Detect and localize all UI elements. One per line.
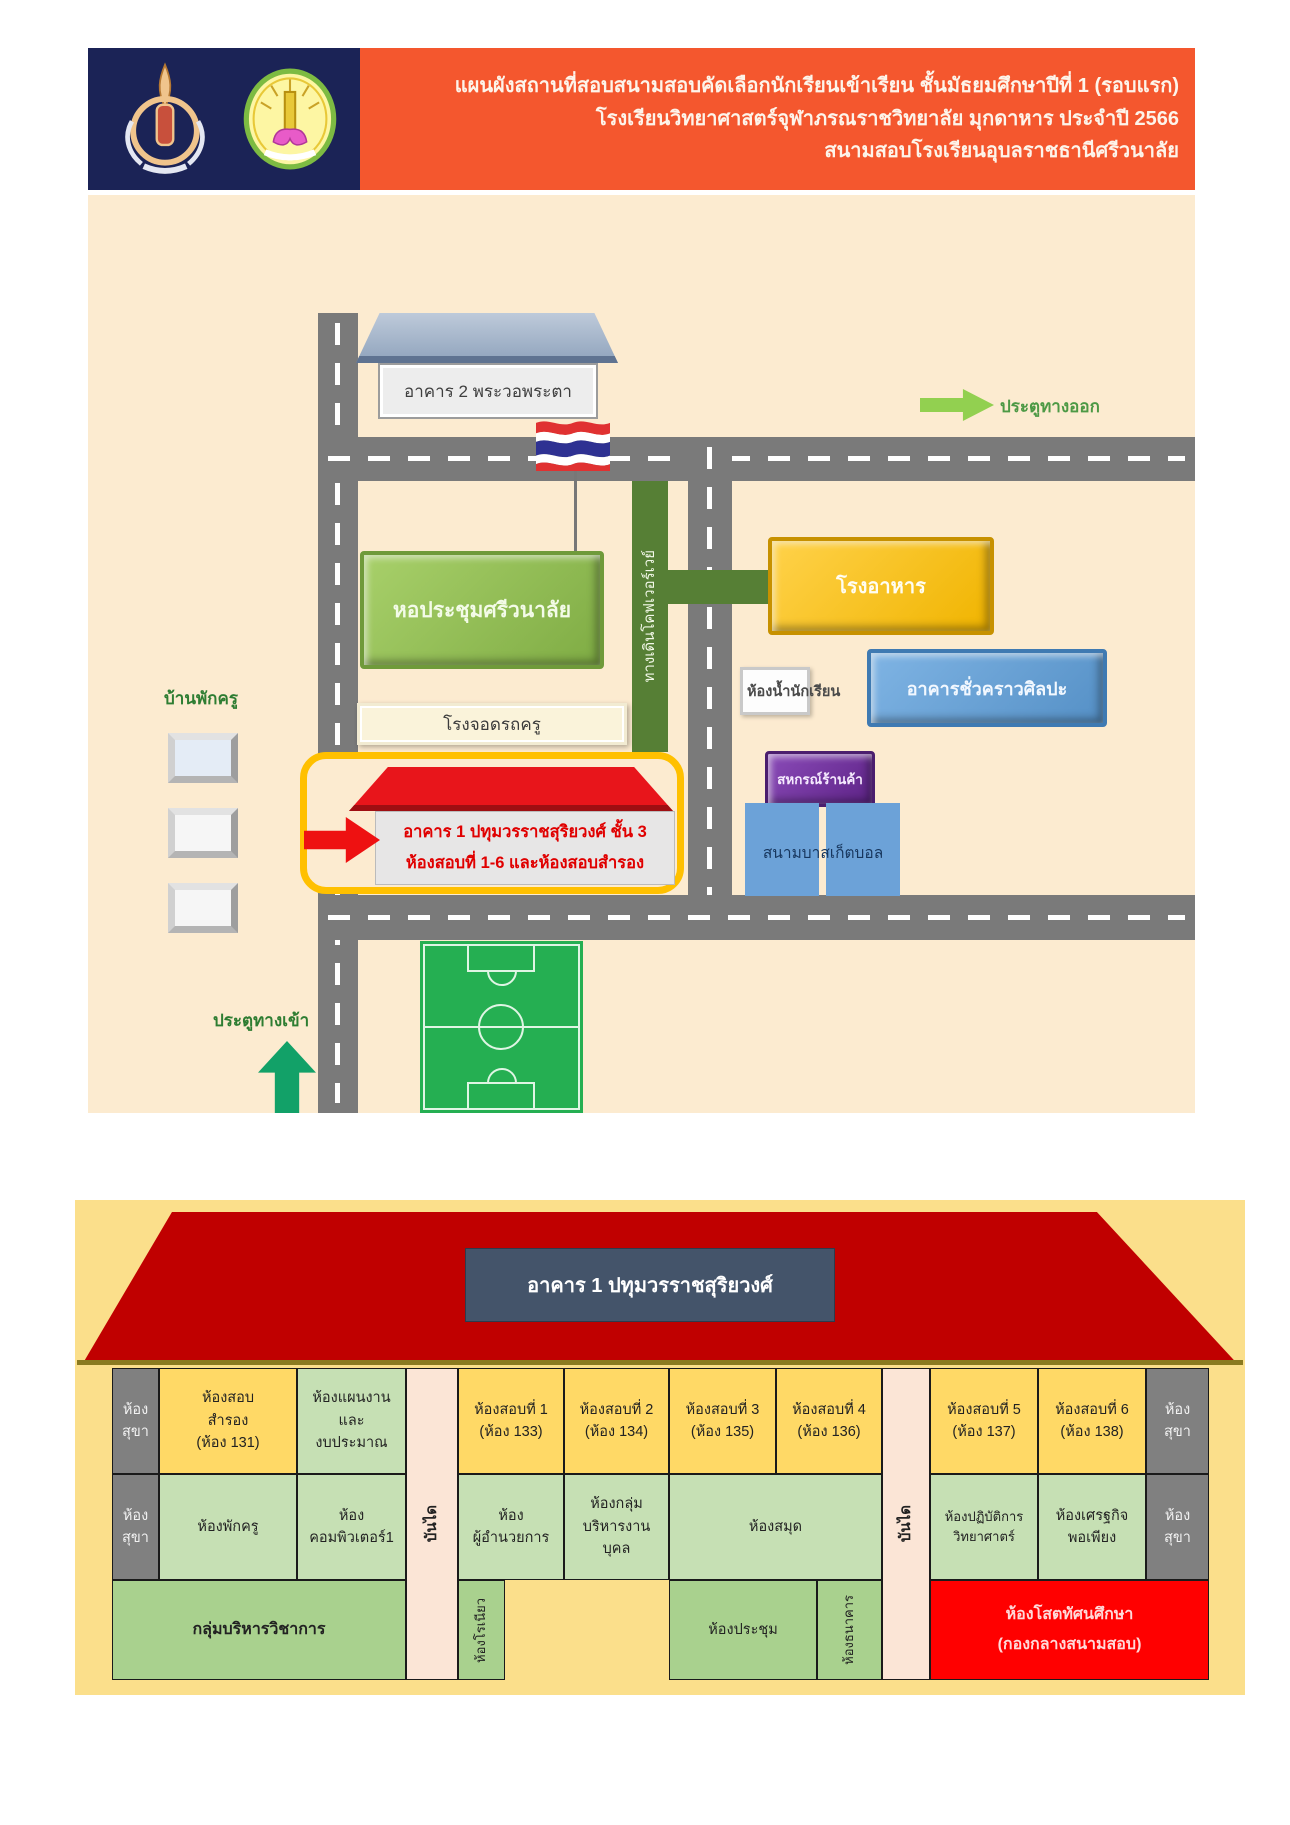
- room-planning-budget: ห้องแผนงาน และ งบประมาณ: [297, 1368, 406, 1474]
- exit-arrow-icon: [920, 389, 994, 421]
- room-exam-reserve-131: ห้องสอบ สำรอง (ห้อง 131): [159, 1368, 297, 1474]
- room-bank: ห้องธนาคาร: [817, 1580, 882, 1680]
- room-label: ห้อง: [123, 1505, 148, 1527]
- room-label: ห้องโรเนียว: [471, 1598, 491, 1663]
- room-personnel: ห้องกลุ่ม บริหารงาน บุคล: [564, 1474, 669, 1580]
- coop-label: สหกรณ์ร้านค้า: [777, 768, 863, 790]
- building2-label: อาคาร 2 พระวอพระตา: [404, 378, 572, 405]
- room-label: ห้องกลุ่ม: [590, 1493, 643, 1515]
- room-label: สุขา: [122, 1421, 149, 1443]
- entrance-gate-label: ประตูทางเข้า: [213, 1007, 309, 1034]
- walkway-branch: [668, 570, 776, 604]
- building1-highlight-frame: อาคาร 1 ปทุมวรราชสุริยวงศ์ ชั้น 3 ห้องสอ…: [300, 752, 684, 894]
- building2: อาคาร 2 พระวอพระตา: [378, 363, 598, 419]
- header-logo-strip: [88, 48, 360, 190]
- header-title-line1: แผนผังสถานที่สอบสนามสอบคัดเลือกนักเรียนเ…: [360, 70, 1179, 102]
- room-exam-5-137: ห้องสอบที่ 5 (ห้อง 137): [930, 1368, 1038, 1474]
- room-exam-4-136: ห้องสอบที่ 4 (ห้อง 136): [776, 1368, 882, 1474]
- room-exam-3-135: ห้องสอบที่ 3 (ห้อง 135): [669, 1368, 776, 1474]
- room-audiovisual-exam-center: ห้องโสตทัศนศึกษา (กองกลางสนามสอบ): [930, 1580, 1209, 1680]
- room-label: ห้อง: [1165, 1505, 1190, 1527]
- room-label: ผู้อำนวยการ: [473, 1527, 550, 1549]
- room-label: สุขา: [122, 1527, 149, 1549]
- room-label: (ห้อง 131): [196, 1432, 259, 1454]
- road-dash: [328, 915, 1185, 920]
- room-label: งบประมาณ: [315, 1432, 387, 1454]
- room-label: กลุ่มบริหารวิชาการ: [192, 1618, 325, 1643]
- room-exam-1-133: ห้องสอบที่ 1 (ห้อง 133): [458, 1368, 564, 1474]
- stairs-label: บันได: [420, 1505, 443, 1542]
- room-toilet: ห้อง สุขา: [1146, 1474, 1209, 1580]
- room-label: (ห้อง 133): [479, 1421, 542, 1443]
- room-label: ห้องสมุด: [749, 1516, 802, 1538]
- room-label: ห้องแผนงาน: [312, 1387, 390, 1409]
- room-label: สุขา: [1164, 1421, 1191, 1443]
- student-toilet-label: ห้องน้ำนักเรียน: [747, 680, 840, 703]
- room-label: (ห้อง 135): [691, 1421, 754, 1443]
- school-emblem-2-icon: [238, 58, 342, 180]
- room-label: ห้อง: [339, 1505, 364, 1527]
- room-toilet: ห้อง สุขา: [112, 1368, 159, 1474]
- room-label: สำรอง: [208, 1410, 249, 1432]
- room-label: ห้องสอบที่ 5: [947, 1399, 1021, 1421]
- road-dash: [707, 447, 712, 930]
- teacher-house: [168, 883, 238, 933]
- road-horizontal-top: [318, 437, 1195, 481]
- auditorium-label: หอประชุมศรีวนาลัย: [393, 594, 571, 627]
- art-building-label: อาคารชั่วคราวศิลปะ: [907, 674, 1068, 703]
- building2-roof: [356, 313, 618, 363]
- room-label: ห้อง: [1165, 1399, 1190, 1421]
- parking-label: โรงจอดรถครู: [443, 711, 541, 738]
- stairs-left: บันได: [406, 1368, 458, 1680]
- room-label: ห้องเศรฐกิจ: [1056, 1505, 1129, 1527]
- room-label: สุขา: [1164, 1527, 1191, 1549]
- room-label: (ห้อง 138): [1060, 1421, 1123, 1443]
- stairs-right: บันได: [882, 1368, 930, 1680]
- floorplan-title: อาคาร 1 ปทุมวรราชสุริยวงศ์: [527, 1269, 773, 1301]
- building1-roof: [349, 767, 673, 811]
- school-emblem-1-icon: [106, 58, 224, 180]
- room-label: ห้องสอบที่ 4: [792, 1399, 866, 1421]
- road-dash: [328, 456, 1185, 461]
- covered-walkway-label: ทางเดินโคฟเวอร์เวย์: [638, 550, 662, 682]
- room-label: ห้องปฏิบัติการ: [945, 1507, 1024, 1527]
- header-banner: แผนผังสถานที่สอบสนามสอบคัดเลือกนักเรียนเ…: [360, 48, 1195, 190]
- room-toilet: ห้อง สุขา: [112, 1474, 159, 1580]
- canteen-label: โรงอาหาร: [836, 570, 926, 602]
- header-title-line2: โรงเรียนวิทยาศาสตร์จุฬาภรณราชวิทยาลัย มุ…: [360, 103, 1179, 135]
- coop-shop-building: สหกรณ์ร้านค้า: [765, 751, 875, 807]
- room-label: (ห้อง 134): [585, 1421, 648, 1443]
- road-horizontal-lower: [318, 895, 1195, 940]
- room-label: ห้องสอบที่ 6: [1055, 1399, 1129, 1421]
- road-vertical-left: [318, 313, 358, 1113]
- entrance-arrow-icon: [258, 1041, 316, 1113]
- room-label: ห้องสอบที่ 3: [686, 1399, 760, 1421]
- art-building: อาคารชั่วคราวศิลปะ: [867, 649, 1107, 727]
- room-label: ห้องพักครู: [197, 1516, 258, 1538]
- auditorium-building: หอประชุมศรีวนาลัย: [360, 551, 604, 669]
- floorplan-title-box: อาคาร 1 ปทุมวรราชสุริยวงศ์: [465, 1248, 835, 1322]
- student-toilet-building: ห้องน้ำนักเรียน: [740, 667, 810, 715]
- building1: อาคาร 1 ปทุมวรราชสุริยวงศ์ ชั้น 3 ห้องสอ…: [375, 811, 675, 885]
- header-title-line3: สนามสอบโรงเรียนอุบลราชธานีศรีวนาลัย: [360, 135, 1179, 167]
- room-label: ห้องประชุม: [708, 1619, 778, 1641]
- room-teacher-lounge: ห้องพักครู: [159, 1474, 297, 1580]
- room-label: พอเพียง: [1068, 1527, 1116, 1549]
- basketball-label: สนามบาสเก็ตบอล: [740, 840, 906, 865]
- room-computer: ห้อง คอมพิวเตอร์1: [297, 1474, 406, 1580]
- room-label: และ: [338, 1410, 364, 1432]
- poster-page: แผนผังสถานที่สอบสนามสอบคัดเลือกนักเรียนเ…: [0, 0, 1290, 1825]
- teacher-house: [168, 733, 238, 783]
- canteen-building: โรงอาหาร: [768, 537, 994, 635]
- room-library: ห้องสมุด: [669, 1474, 882, 1580]
- stairs-label: บันได: [894, 1505, 917, 1542]
- room-label: ห้อง: [498, 1505, 523, 1527]
- room-science-lab: ห้องปฏิบัติการ วิทยาศาตร์: [930, 1474, 1038, 1580]
- floorplan-roof-edge: [77, 1360, 1243, 1365]
- room-label: ห้องธนาคาร: [839, 1595, 859, 1665]
- room-label: บริหารงาน: [583, 1516, 651, 1538]
- teacher-housing-label: บ้านพักครู: [164, 685, 238, 712]
- campus-map: ทางเดินโคฟเวอร์เวย์ อาคาร 2 พระวอพระตา ป…: [88, 195, 1195, 1113]
- room-meeting: ห้องประชุม: [669, 1580, 817, 1680]
- room-academic-admin: กลุ่มบริหารวิชาการ: [112, 1580, 406, 1680]
- room-label: (ห้อง 137): [952, 1421, 1015, 1443]
- room-label: (ห้อง 136): [797, 1421, 860, 1443]
- room-label: (กองกลางสนามสอบ): [998, 1630, 1142, 1660]
- building1-label-line2: ห้องสอบที่ 1-6 และห้องสอบสำรอง: [406, 848, 644, 879]
- room-exam-2-134: ห้องสอบที่ 2 (ห้อง 134): [564, 1368, 669, 1474]
- room-label: ห้องสอบที่ 2: [580, 1399, 654, 1421]
- teacher-parking-building: โรงจอดรถครู: [357, 703, 627, 745]
- football-field: [420, 941, 583, 1113]
- covered-walkway: ทางเดินโคฟเวอร์เวย์: [632, 481, 668, 752]
- room-label: วิทยาศาตร์: [953, 1527, 1015, 1547]
- road-vertical-right: [688, 437, 732, 940]
- room-label: คอมพิวเตอร์1: [309, 1527, 394, 1549]
- room-label: บุคล: [603, 1538, 631, 1560]
- room-label: ห้องสอบที่ 1: [474, 1399, 548, 1421]
- teacher-house: [168, 808, 238, 858]
- floorplan-panel: อาคาร 1 ปทุมวรราชสุริยวงศ์ บันได บันได ห…: [75, 1200, 1245, 1695]
- room-toilet: ห้อง สุขา: [1146, 1368, 1209, 1474]
- room-economy: ห้องเศรฐกิจ พอเพียง: [1038, 1474, 1146, 1580]
- thai-flag-icon: [536, 417, 610, 471]
- room-label: ห้อง: [123, 1399, 148, 1421]
- room-label: ห้องโสตทัศนศึกษา: [1006, 1600, 1134, 1630]
- room-label: ห้องสอบ: [202, 1387, 254, 1409]
- room-exam-6-138: ห้องสอบที่ 6 (ห้อง 138): [1038, 1368, 1146, 1474]
- exit-gate-label: ประตูทางออก: [1000, 393, 1100, 420]
- roof-edge: [356, 356, 618, 363]
- building1-label-line1: อาคาร 1 ปทุมวรราชสุริยวงศ์ ชั้น 3: [403, 817, 647, 848]
- room-director: ห้อง ผู้อำนวยการ: [458, 1474, 564, 1580]
- room-roneo: ห้องโรเนียว: [458, 1580, 505, 1680]
- floorplan-rooms: บันได บันได ห้อง สุขา ห้องสอบ สำรอง (ห้อ…: [75, 1368, 1245, 1680]
- covered-walkway-label-wrap: ทางเดินโคฟเวอร์เวย์: [632, 481, 668, 752]
